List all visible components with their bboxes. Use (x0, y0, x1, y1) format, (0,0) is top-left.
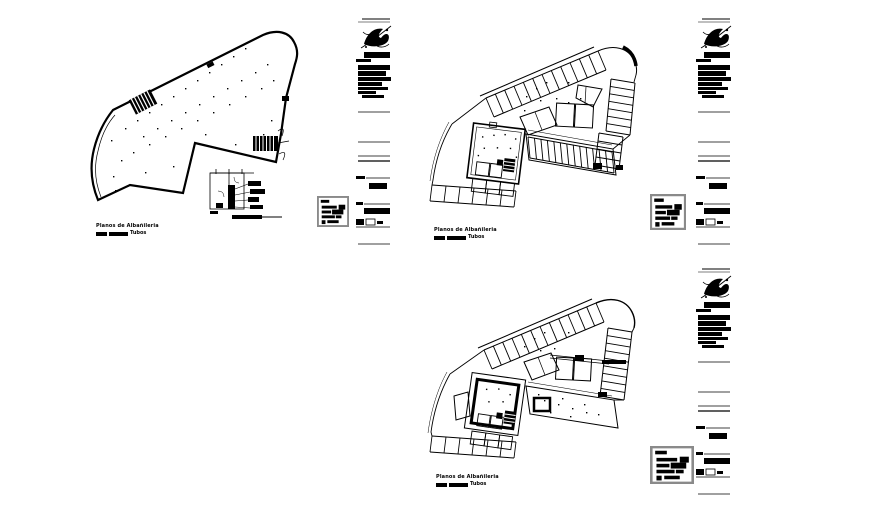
graphic-scale-bar: Tubos (96, 231, 159, 236)
scale-segment (436, 483, 447, 487)
stair-core (503, 410, 516, 424)
detail-wet-wall (228, 185, 235, 209)
legend-box-2 (650, 194, 686, 230)
detail-leader-lines (235, 184, 250, 208)
stair-hatch-block (129, 89, 158, 114)
plan2-central-building (465, 120, 525, 197)
scale-segment (434, 236, 445, 240)
drawing-sheet: { "sheet": { "background_color": "#fffff… (0, 0, 870, 509)
logo-emblem-icon (701, 26, 731, 48)
service-room-thick-walls (534, 398, 550, 411)
plan3-corner-curve (596, 300, 635, 328)
plan3-caption: Planos de Albañileria Tubos (436, 475, 499, 487)
column-grid-dots (484, 387, 511, 406)
plan1-caption: Planos de Albañileria Tubos (96, 224, 159, 236)
column-grid-dots (524, 82, 581, 111)
stair-core (503, 158, 516, 172)
plan2-top-wing (486, 51, 606, 117)
plan-title-text: Planos de Albañileria (96, 224, 159, 229)
scale-label: Tubos (130, 231, 146, 236)
bathroom-detail-drawing (208, 167, 286, 221)
plan3-corridor (550, 355, 609, 364)
plan2-corner-thick-wall (623, 47, 636, 66)
logo-emblem-icon (701, 276, 731, 298)
stair-striped-block (253, 129, 289, 160)
title-block-strip-1 (356, 16, 396, 246)
plan2-caption: Planos de Albañileria Tubos (434, 228, 497, 240)
plan2-mid-rooms (555, 103, 593, 128)
plan2-triangle-room (576, 85, 602, 107)
detail-fixture (210, 211, 218, 214)
plan2-right-room-stack (606, 79, 635, 135)
floor-plan-3 (428, 286, 643, 466)
title-block-strip-3 (696, 266, 736, 496)
logo-emblem-icon (361, 26, 391, 48)
plan2-bottom-row (430, 185, 516, 207)
edge-mark (282, 96, 289, 101)
plan-title-text: Planos de Albañileria (434, 228, 497, 233)
column-grid-dots (478, 131, 520, 161)
scale-label: Tubos (470, 482, 486, 487)
scale-segment (449, 483, 468, 487)
plan1-left-double-wall (96, 115, 115, 197)
detail-scale-bar (232, 215, 282, 219)
detail-fixture (216, 203, 223, 208)
scale-label: Tubos (468, 235, 484, 240)
plan3-bottom-row (430, 436, 516, 458)
scale-segment (447, 236, 466, 240)
floor-plan-2 (428, 38, 643, 210)
plan2-lower-band (526, 130, 616, 175)
scale-segment (109, 232, 128, 236)
legend-box-1 (317, 196, 349, 227)
plan3-site-boundary (428, 328, 634, 436)
plan3-tilted-room (524, 353, 559, 380)
title-block-strip-2 (696, 16, 736, 246)
plan3-mid-rooms (555, 357, 591, 381)
graphic-scale-bar: Tubos (434, 235, 497, 240)
plan-title-text: Planos de Albañileria (436, 475, 499, 480)
graphic-scale-bar: Tubos (436, 482, 499, 487)
stair-core (616, 165, 623, 170)
detail-annotation-labels (248, 181, 265, 209)
plan2-site-boundary (430, 75, 636, 185)
legend-box-3 (650, 446, 694, 484)
scale-segment (96, 232, 107, 236)
